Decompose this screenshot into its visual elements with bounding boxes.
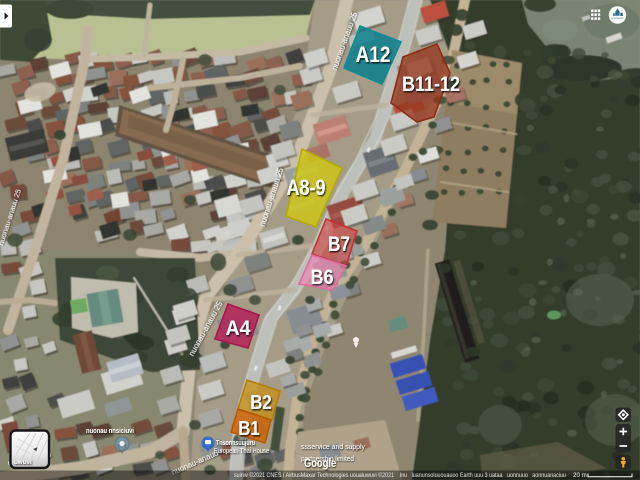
svg-text:A4: A4 <box>226 317 251 340</box>
svg-text:A8-9: A8-9 <box>287 175 326 200</box>
svg-text:nuonau nnsiciuvi: nuonau nnsiciuvi <box>86 426 134 435</box>
svg-text:B6: B6 <box>311 266 334 289</box>
svg-text:B1: B1 <box>238 418 260 440</box>
svg-text:B11-12: B11-12 <box>402 73 460 96</box>
svg-text:suinw ©2021 CNES / AirbusMaxar: suinw ©2021 CNES / AirbusMaxar Technolog… <box>234 472 566 479</box>
svg-text:20 m: 20 m <box>573 472 587 479</box>
svg-text:B7: B7 <box>328 233 350 256</box>
svg-text:A12: A12 <box>356 42 391 67</box>
svg-text:European Thai House: European Thai House <box>214 446 269 455</box>
svg-text:B2: B2 <box>250 392 272 414</box>
svg-text:uwuvi: uwuvi <box>14 459 32 466</box>
svg-text:ssservice and supply: ssservice and supply <box>301 442 365 451</box>
svg-text:Google: Google <box>304 458 336 470</box>
